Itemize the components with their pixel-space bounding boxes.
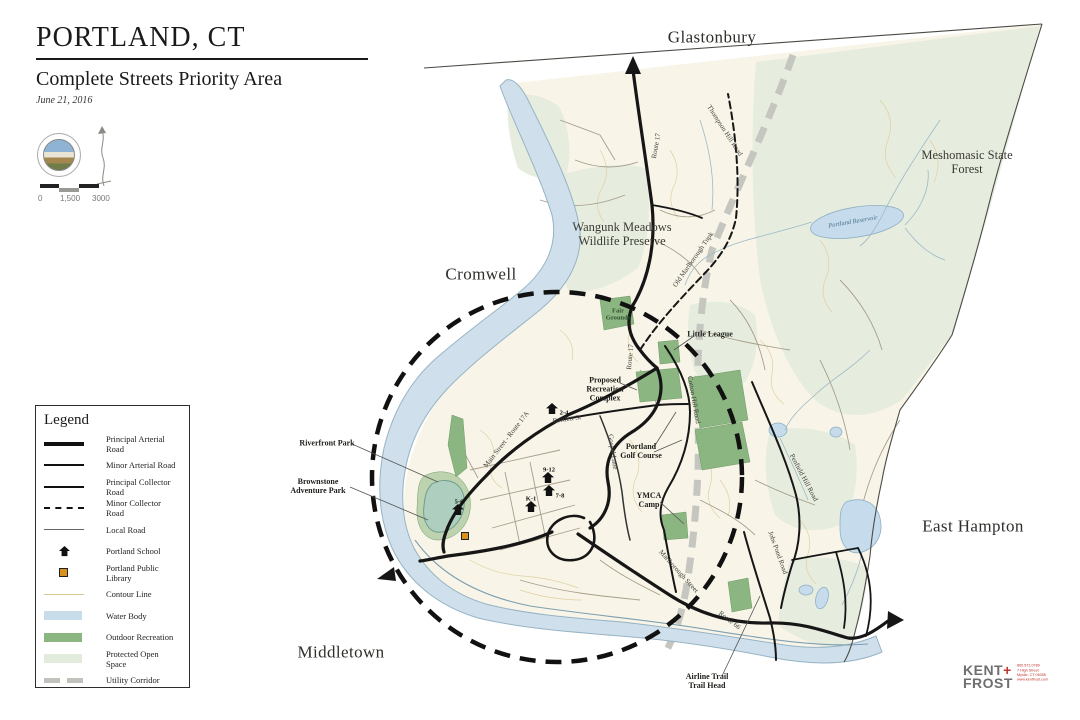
scale-segment	[40, 184, 59, 188]
credit-block: KENT+ FROST 860.572.07897 High StreetMys…	[963, 664, 1067, 694]
utility-symbol	[44, 678, 84, 683]
legend-item-label: Contour Line	[102, 589, 152, 599]
legend-box: Legend Principal Arterial RoadMinor Arte…	[35, 405, 190, 688]
map-date: June 21, 2016	[36, 95, 376, 106]
scale-labels: 0 1,500 3000	[30, 194, 120, 206]
legend-item-label: Principal Arterial Road	[102, 434, 181, 454]
legend-title: Legend	[44, 412, 181, 429]
legend-item-label: Principal Collector Road	[102, 477, 181, 497]
legend-item-label: Minor Collector Road	[102, 498, 181, 518]
minor-arterial-symbol	[44, 464, 84, 466]
firm-name-2: FROST	[963, 675, 1013, 691]
jobs-pond	[840, 500, 881, 553]
town-seal-logo	[37, 133, 81, 177]
legend-item-label: Outdoor Recreation	[102, 632, 173, 642]
recreation-symbol	[44, 633, 82, 642]
page-subtitle: Complete Streets Priority Area	[36, 68, 376, 91]
legend-item-utility: Utility Corridor	[44, 670, 181, 692]
legend-item-local: Local Road	[44, 519, 181, 541]
legend-item-label: Water Body	[102, 611, 147, 621]
southwest-route-arrow	[377, 567, 396, 581]
legend-item-principal-arterial: Principal Arterial Road	[44, 433, 181, 455]
page-title: PORTLAND, CT	[36, 22, 376, 54]
title-rule	[36, 58, 368, 60]
legend-item-principal-collector: Principal Collector Road	[44, 476, 181, 498]
school-symbol	[44, 546, 84, 557]
principal-arterial-symbol	[44, 442, 84, 446]
legend-item-label: Minor Arterial Road	[102, 460, 175, 470]
local-symbol	[44, 529, 84, 530]
legend-item-label: Protected Open Space	[102, 649, 181, 669]
water-symbol	[44, 611, 82, 620]
legend-item-open-space: Protected Open Space	[44, 648, 181, 670]
north-arrow-icon	[97, 126, 111, 186]
legend-item-label: Portland Public Library	[102, 563, 181, 583]
legend-item-minor-arterial: Minor Arterial Road	[44, 455, 181, 477]
firm-contact-line: Mystic, CT 06355	[1017, 673, 1048, 678]
legend-item-library: Portland Public Library	[44, 562, 181, 584]
open-space-symbol	[44, 654, 82, 663]
legend-item-contour: Contour Line	[44, 584, 181, 606]
scale-tick-1500: 1,500	[60, 194, 80, 203]
legend-item-minor-collector: Minor Collector Road	[44, 498, 181, 520]
firm-contact-line: www.kentfrost.com	[1017, 678, 1048, 683]
firm-contact: 860.572.07897 High StreetMystic, CT 0635…	[1017, 664, 1048, 683]
map-page: GlastonburyCromwellMiddletownEast Hampto…	[0, 0, 1080, 720]
principal-collector-symbol	[44, 486, 84, 488]
scale-tick-3000: 3000	[92, 194, 110, 203]
scale-bar	[40, 184, 100, 192]
legend-item-school: Portland School	[44, 541, 181, 563]
contour-symbol	[44, 594, 84, 595]
legend-item-label: Utility Corridor	[102, 675, 160, 685]
north-route-arrow	[625, 56, 641, 74]
scale-tick-0: 0	[38, 194, 42, 203]
town-seal-art	[43, 139, 75, 171]
scale-segment	[79, 184, 99, 188]
school-icon	[59, 546, 70, 557]
east-route-arrow	[887, 611, 904, 629]
legend-item-recreation: Outdoor Recreation	[44, 627, 181, 649]
legend-items: Principal Arterial RoadMinor Arterial Ro…	[44, 433, 181, 691]
library-symbol	[59, 568, 68, 577]
scale-segment	[59, 188, 79, 192]
minor-collector-symbol	[44, 507, 84, 509]
legend-item-label: Portland School	[102, 546, 161, 556]
legend-item-water: Water Body	[44, 605, 181, 627]
title-block: PORTLAND, CT Complete Streets Priority A…	[36, 22, 376, 106]
firm-logo: KENT+ FROST	[963, 664, 1013, 691]
legend-item-label: Local Road	[102, 525, 145, 535]
